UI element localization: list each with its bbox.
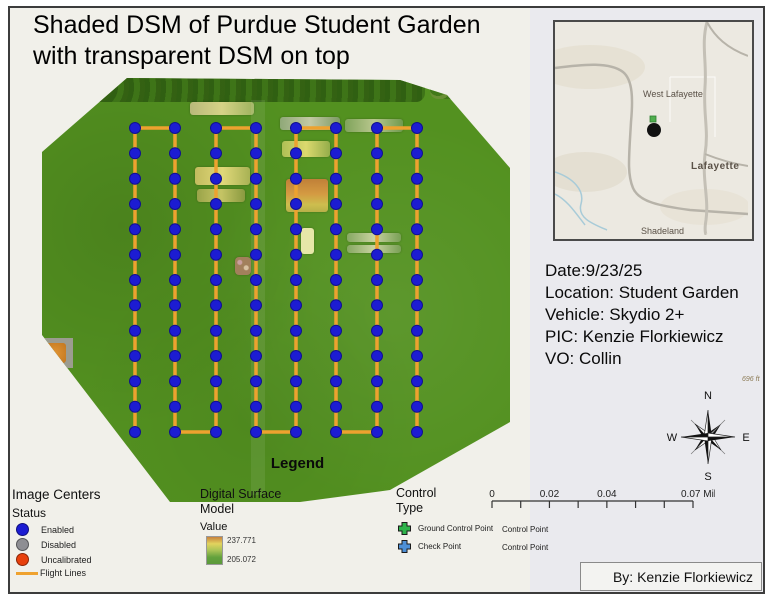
byline-text: By: Kenzie Florkiewicz	[613, 569, 753, 585]
legend-item-flight-lines: Flight Lines	[16, 568, 86, 578]
compass-e-label: E	[742, 432, 749, 444]
city-boundary-line	[670, 77, 715, 137]
compass-star	[681, 410, 735, 464]
hoop-house	[286, 179, 328, 212]
dsm-min-value: 205.072	[227, 555, 256, 564]
svg-text:0.04: 0.04	[597, 489, 617, 500]
legend-item-check-point: Check Point	[398, 540, 461, 553]
control-header-line-2: Type	[396, 501, 566, 516]
page-title: Shaded DSM of Purdue Student Garden with…	[33, 10, 533, 72]
control-header-line-1: Control	[396, 486, 566, 501]
inset-locator-map: West Lafayette Lafayette Shadeland	[553, 20, 754, 241]
legend-item-gcp: Ground Control Point	[398, 522, 493, 535]
image-centers-subheader: Status	[12, 506, 192, 520]
info-location: Location: Student Garden	[545, 282, 760, 304]
dsm-header-line-1: Digital Surface	[200, 487, 330, 502]
garden-bed	[197, 189, 245, 202]
ground-control-point-icon	[398, 522, 411, 535]
info-pic: PIC: Kenzie Florkiewicz	[545, 326, 760, 348]
inset-label-shadeland: Shadeland	[641, 226, 684, 235]
legend-item-label: Enabled	[41, 525, 74, 535]
mission-info-block: Date:9/23/25 Location: Student Garden Ve…	[545, 260, 760, 370]
garden-bed	[280, 117, 340, 130]
info-vehicle: Vehicle: Skydio 2+	[545, 304, 760, 326]
gcp-type-label: Control Point	[502, 525, 548, 534]
legend-item-label: Check Point	[418, 542, 461, 551]
flower-patch	[235, 257, 251, 275]
garden-bed	[282, 141, 330, 157]
road-line	[707, 22, 748, 56]
check-point-type-label: Control Point	[502, 543, 548, 552]
compass-rose: N S W E	[664, 385, 754, 482]
compass-s-label: S	[704, 471, 711, 482]
dsm-max-value: 237.771	[227, 536, 256, 545]
garden-bed	[195, 167, 250, 185]
legend-item-enabled: Enabled	[16, 523, 74, 536]
legend-item-uncalibrated: Uncalibrated	[16, 553, 92, 566]
garden-bed	[345, 119, 403, 132]
enabled-dot-swatch	[16, 523, 29, 536]
legend-item-disabled: Disabled	[16, 538, 76, 551]
info-date: Date:9/23/25	[545, 260, 760, 282]
site-dot-marker	[647, 123, 661, 137]
legend-item-label: Uncalibrated	[41, 555, 92, 565]
inset-label-west-lafayette: West Lafayette	[643, 89, 703, 99]
info-vo: VO: Collin	[545, 348, 760, 370]
image-centers-header: Image Centers	[12, 487, 192, 502]
garden-bed	[347, 245, 401, 253]
title-line-2: with transparent DSM on top	[33, 41, 533, 72]
garden-bed	[190, 102, 254, 115]
terrain-shading	[555, 152, 627, 192]
title-line-1: Shaded DSM of Purdue Student Garden	[33, 10, 533, 41]
dsm-value-label: Value	[200, 521, 330, 533]
legend-item-label: Flight Lines	[40, 568, 86, 578]
garden-bed	[301, 228, 314, 254]
spot-elevation-label: 696 ft	[742, 376, 760, 383]
check-point-icon	[398, 540, 411, 553]
legend-control: Control Type Ground Control Point Contro…	[396, 486, 566, 516]
byline-box: By: Kenzie Florkiewicz	[580, 562, 762, 591]
site-square-marker	[650, 116, 656, 122]
legend-item-label: Ground Control Point	[418, 524, 493, 533]
compass-w-label: W	[667, 432, 678, 444]
compass-n-label: N	[704, 390, 712, 402]
dsm-header-line-2: Model	[200, 502, 330, 517]
svg-text:0.07 Miles: 0.07 Miles	[681, 489, 715, 500]
legend-dsm: Digital Surface Model Value 237.771 205.…	[200, 487, 330, 533]
disabled-dot-swatch	[16, 538, 29, 551]
garden-bed	[347, 233, 401, 242]
inset-label-lafayette: Lafayette	[691, 161, 739, 172]
legend-image-centers: Image Centers Status Enabled Disabled Un…	[12, 487, 192, 520]
legend-title: Legend	[245, 455, 350, 472]
legend-item-label: Disabled	[41, 540, 76, 550]
dsm-color-ramp	[206, 536, 223, 565]
uncalibrated-dot-swatch	[16, 553, 29, 566]
flight-line-swatch	[16, 572, 38, 575]
path-band	[251, 100, 265, 495]
